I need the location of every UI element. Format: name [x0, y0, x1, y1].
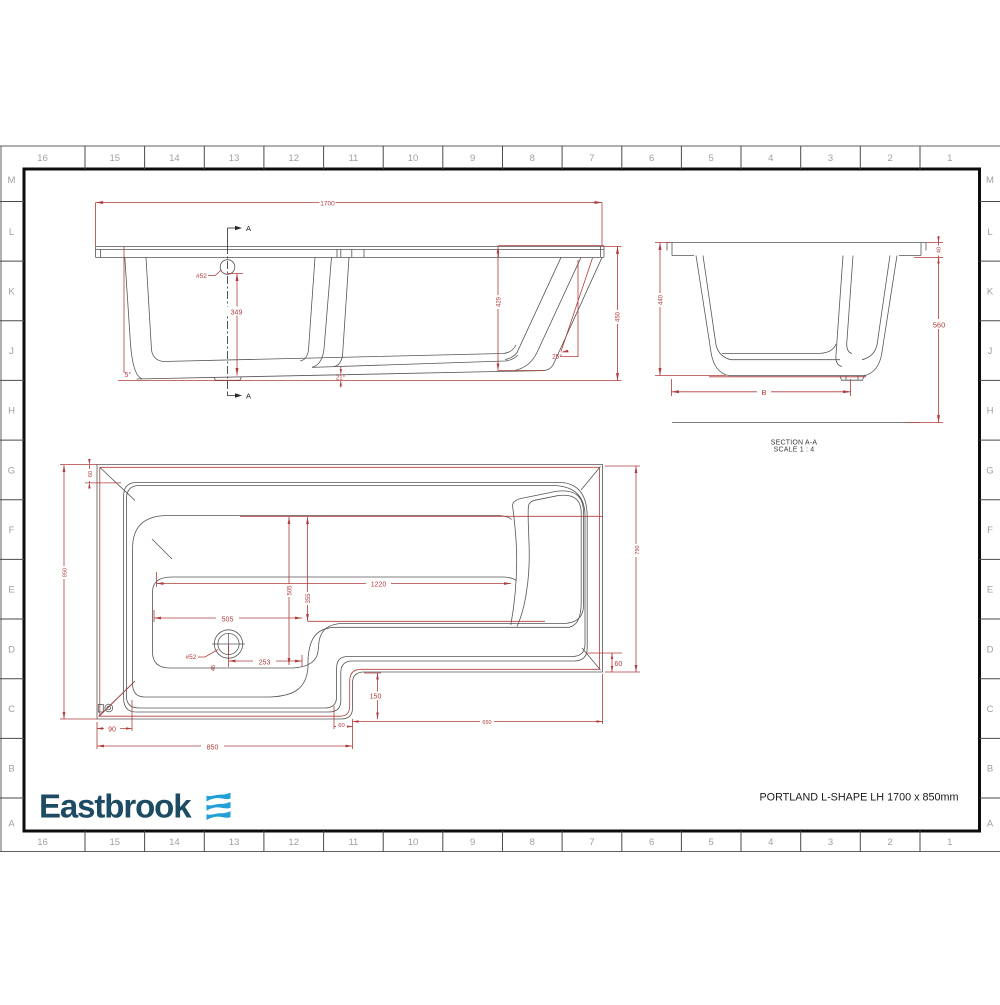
svg-text:PORTLAND L-SHAPE LH 1700 x 8: PORTLAND L-SHAPE LH 1700 x 850mm: [759, 792, 958, 804]
svg-text:505: 505: [288, 585, 294, 596]
svg-text:60: 60: [88, 471, 94, 477]
svg-text:150: 150: [370, 694, 382, 701]
svg-text:25°: 25°: [552, 353, 562, 361]
svg-text:253: 253: [259, 660, 271, 667]
svg-text:1700: 1700: [320, 200, 335, 207]
svg-text:SECTION A-A: SECTION A-A: [771, 440, 818, 447]
svg-text:5°: 5°: [125, 371, 132, 379]
svg-text:A: A: [246, 392, 251, 401]
svg-text:650: 650: [482, 720, 491, 726]
svg-text:B: B: [761, 388, 766, 397]
svg-text:850: 850: [63, 568, 69, 577]
svg-text:1220: 1220: [371, 581, 387, 588]
svg-text:505: 505: [222, 617, 234, 624]
svg-text:440: 440: [659, 294, 665, 305]
svg-text:45: 45: [211, 665, 217, 671]
svg-text:40: 40: [937, 247, 943, 253]
svg-text:60: 60: [615, 661, 623, 668]
svg-text:429: 429: [497, 296, 503, 307]
svg-text:560: 560: [933, 320, 946, 329]
svg-text:60: 60: [338, 723, 344, 729]
svg-text:21°: 21°: [336, 376, 346, 382]
svg-text:349: 349: [231, 310, 243, 317]
svg-text:90: 90: [108, 727, 116, 734]
svg-text:Eastbrook: Eastbrook: [39, 788, 192, 825]
svg-text:SCALE 1 : 4: SCALE 1 : 4: [774, 447, 815, 454]
svg-text:850: 850: [207, 745, 219, 752]
svg-text:355: 355: [306, 593, 312, 604]
svg-text:450: 450: [616, 311, 622, 322]
svg-text:#52: #52: [196, 273, 207, 280]
svg-text:A: A: [246, 224, 251, 233]
svg-text:#52: #52: [186, 654, 197, 661]
svg-text:790: 790: [635, 545, 641, 554]
